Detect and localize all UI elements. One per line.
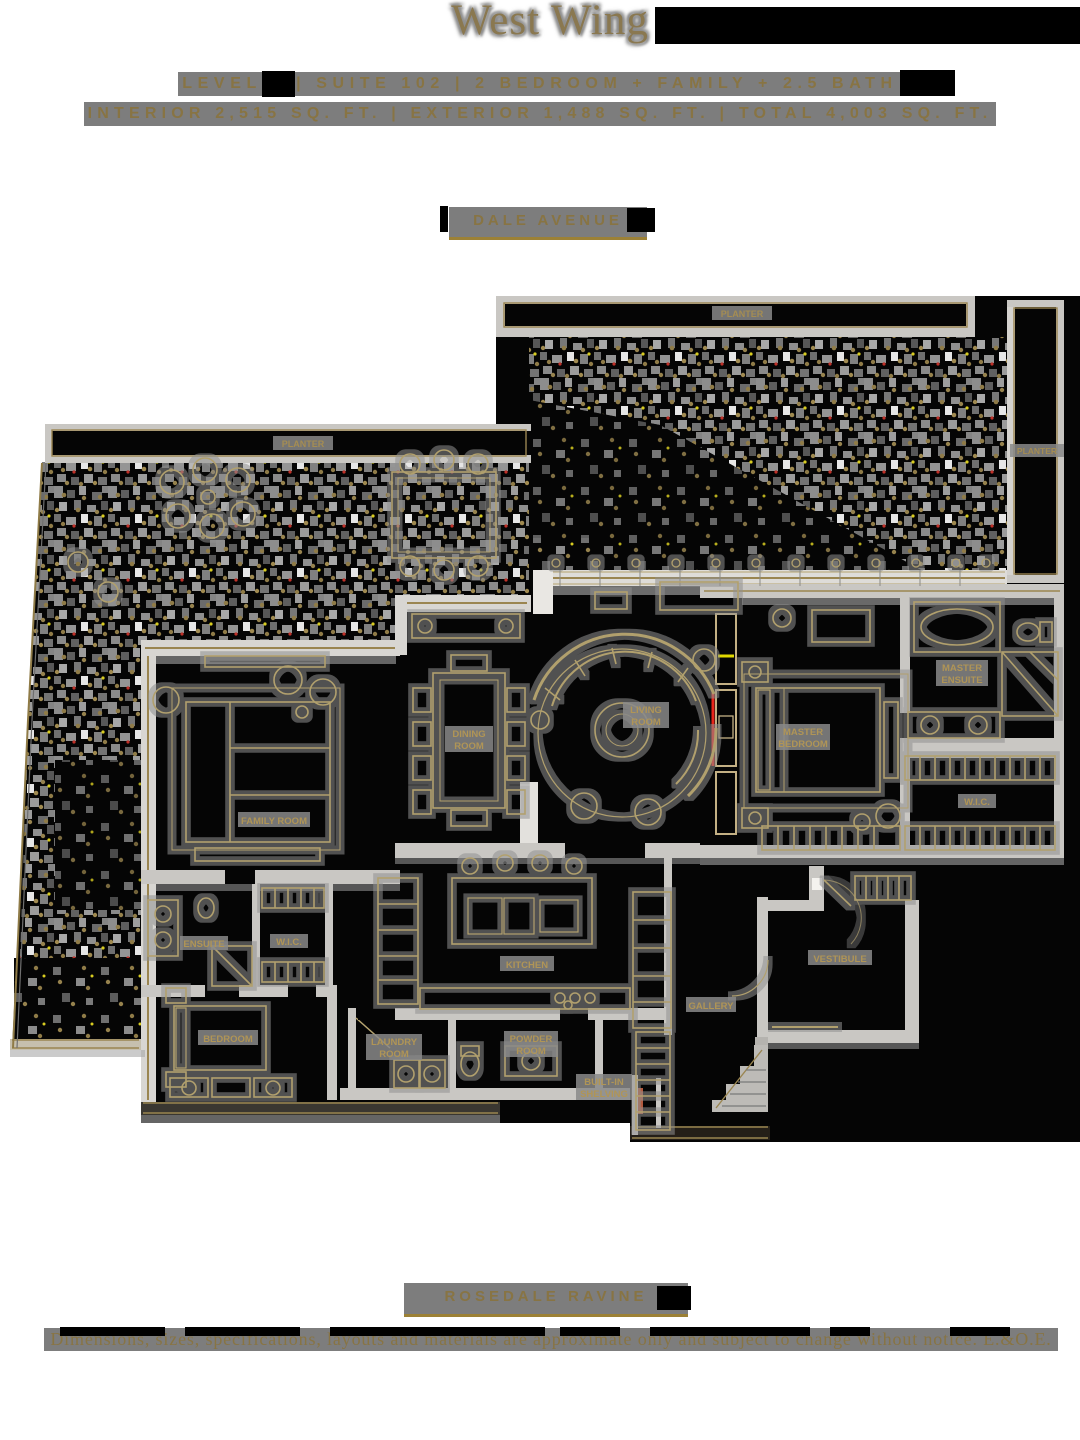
svg-text:ROOM: ROOM	[454, 741, 484, 752]
svg-text:DINING: DINING	[452, 729, 485, 740]
svg-text:MASTER: MASTER	[942, 663, 982, 674]
svg-text:FAMILY ROOM: FAMILY ROOM	[241, 816, 307, 827]
svg-text:GALLERY: GALLERY	[688, 1001, 734, 1012]
svg-text:W.I.C.: W.I.C.	[276, 937, 302, 948]
svg-text:VESTIBULE: VESTIBULE	[813, 954, 866, 965]
svg-text:KITCHEN: KITCHEN	[506, 960, 548, 971]
svg-text:ROOM: ROOM	[631, 717, 661, 728]
svg-text:SHELVING: SHELVING	[580, 1089, 628, 1100]
svg-text:LAUNDRY: LAUNDRY	[371, 1037, 418, 1048]
svg-text:ENSUITE: ENSUITE	[941, 675, 982, 686]
svg-text:PLANTER: PLANTER	[1017, 446, 1057, 456]
svg-text:ROOM: ROOM	[379, 1049, 409, 1060]
svg-text:W.I.C.: W.I.C.	[964, 797, 990, 808]
svg-text:BEDROOM: BEDROOM	[203, 1034, 253, 1045]
svg-text:BUILT-IN: BUILT-IN	[584, 1077, 624, 1088]
svg-text:LIVING: LIVING	[630, 705, 662, 716]
svg-text:ROOM: ROOM	[516, 1046, 546, 1057]
svg-text:BEDROOM: BEDROOM	[778, 739, 828, 750]
svg-text:PLANTER: PLANTER	[282, 439, 325, 449]
svg-text:MASTER: MASTER	[783, 727, 823, 738]
svg-text:PLANTER: PLANTER	[721, 309, 764, 319]
svg-text:POWDER: POWDER	[510, 1034, 553, 1045]
svg-text:ENSUITE: ENSUITE	[183, 939, 224, 950]
